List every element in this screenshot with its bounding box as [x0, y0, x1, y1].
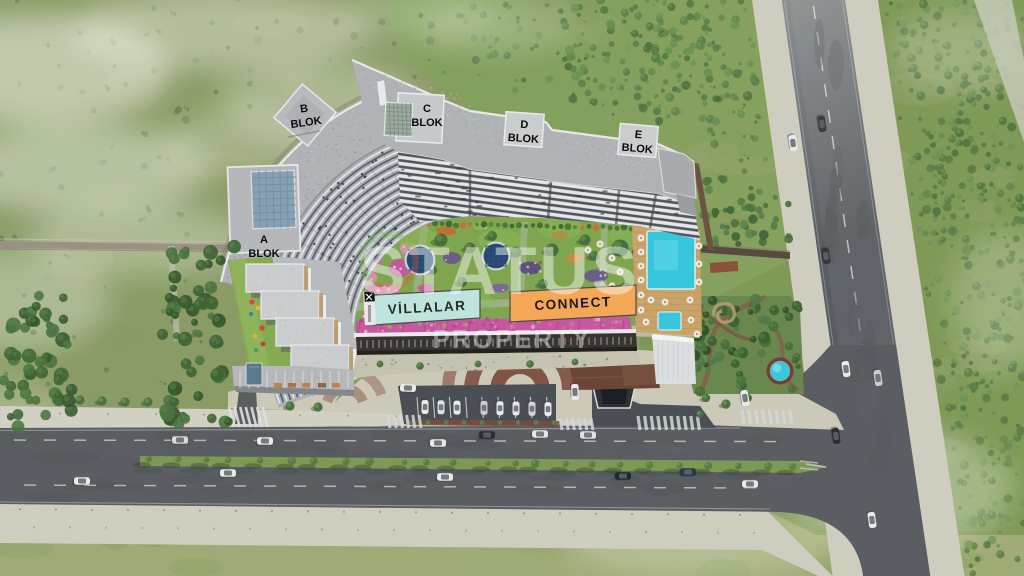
- svg-text:B: B: [299, 103, 309, 116]
- svg-text:BLOK: BLOK: [507, 132, 539, 146]
- svg-text:A: A: [260, 234, 268, 246]
- svg-text:BLOK: BLOK: [411, 117, 442, 129]
- svg-text:STATUS: STATUS: [360, 233, 640, 309]
- svg-text:BLOK: BLOK: [248, 248, 279, 260]
- svg-text:D: D: [520, 119, 529, 132]
- svg-text:E: E: [634, 129, 642, 142]
- svg-text:PROPERTY: PROPERTY: [432, 324, 591, 354]
- svg-text:C: C: [423, 103, 431, 115]
